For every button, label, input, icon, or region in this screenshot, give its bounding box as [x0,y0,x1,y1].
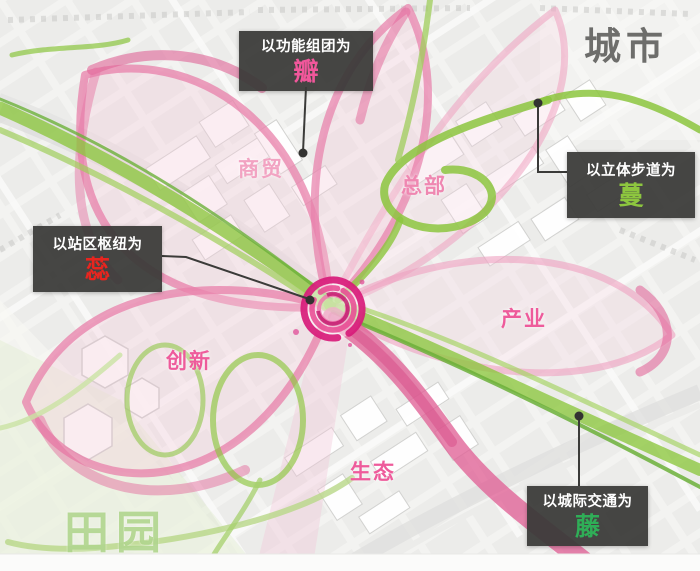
callout-pistil: 以站区枢纽为 蕊 [33,226,162,292]
callout-rattan-keyword: 藤 [536,513,639,542]
zone-label-innovation: 创新 [166,345,212,375]
callout-vine-caption: 以立体步道为 [576,162,686,182]
background-label-city: 城市 [584,16,668,70]
callout-vine-keyword: 蔓 [576,182,686,211]
zone-label-ecology: 生态 [350,456,396,486]
callout-vine: 以立体步道为 蔓 [567,152,695,218]
callout-petal-caption: 以功能组团为 [248,38,364,58]
callout-pistil-caption: 以站区枢纽为 [42,236,153,256]
background-label-countryside: 田园 [64,496,168,561]
callout-rattan-caption: 以城际交通为 [536,493,639,513]
zone-label-headquarters: 总部 [401,170,447,200]
callout-petal-keyword: 瓣 [248,58,364,87]
callout-petal: 以功能组团为 瓣 [239,31,373,91]
callout-pistil-keyword: 蕊 [42,256,153,285]
concept-plan-figure: 城市 田园 商贸 总部 产业 创新 生态 以功能组团为 瓣 以立体步道为 蔓 以… [0,0,700,571]
zone-label-commerce: 商贸 [238,153,284,183]
callout-rattan: 以城际交通为 藤 [527,486,648,546]
zone-label-industry: 产业 [501,303,547,333]
